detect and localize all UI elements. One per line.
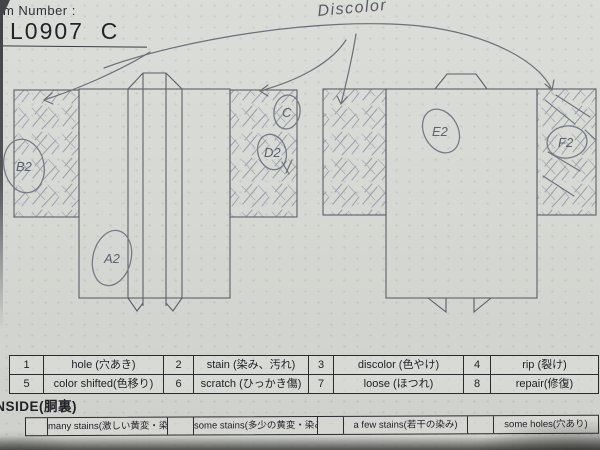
front-collar-bands xyxy=(128,73,182,306)
inside-label: some stains(多少の黄変・染み) xyxy=(194,417,318,435)
defect-label: discolor (色やけ) xyxy=(334,356,464,375)
photo-corner-bottom-left xyxy=(0,430,90,450)
mark-F2: F2 xyxy=(558,135,574,150)
back-collar-top xyxy=(435,74,487,89)
defect-code: 4 xyxy=(464,356,491,375)
kimono-front-diagram xyxy=(14,73,297,311)
inside-checkbox-cell xyxy=(318,417,344,434)
defect-code: 1 xyxy=(10,356,44,375)
kimono-inspection-sheet: Item Number : L0907 C xyxy=(0,0,600,450)
photo-edge-left xyxy=(0,0,3,330)
defect-label: rip (裂け) xyxy=(491,356,598,375)
handwritten-annotations xyxy=(44,24,554,174)
arrow-to-front-right-sleeve xyxy=(260,40,346,91)
handwritten-note-discolor: Discolor xyxy=(317,0,388,20)
defect-code: 3 xyxy=(309,356,334,375)
defect-legend-table: 1 hole (穴あき) 2 stain (染み、汚れ) 3 discolor … xyxy=(9,355,599,394)
back-right-sleeve xyxy=(537,89,596,215)
defect-label: stain (染み、汚れ) xyxy=(194,356,309,375)
defect-label: loose (ほつれ) xyxy=(334,375,464,393)
mark-D2: D2 xyxy=(264,145,281,160)
defect-code: 7 xyxy=(309,375,334,393)
front-left-sleeve xyxy=(14,90,79,217)
kimono-back-diagram xyxy=(323,74,596,312)
mark-C: C xyxy=(282,105,292,120)
defect-label: scratch (ひっかき傷) xyxy=(194,375,309,393)
front-collar-tips xyxy=(128,298,182,311)
defect-code: 6 xyxy=(164,375,194,393)
back-body xyxy=(386,89,537,298)
defect-code: 5 xyxy=(10,375,44,393)
mark-B2: B2 xyxy=(16,159,33,174)
defect-code: 2 xyxy=(164,356,194,375)
defect-code: 8 xyxy=(464,375,491,393)
back-left-sleeve xyxy=(323,89,386,215)
defect-label: color shifted(色移り) xyxy=(44,375,164,393)
inside-checkbox-cell xyxy=(168,418,194,435)
photo-corner-bottom-right xyxy=(455,418,600,450)
mark-A2: A2 xyxy=(103,251,121,266)
inside-label: a few stains(若干の染み) xyxy=(344,416,468,434)
defect-label: repair(修復) xyxy=(491,375,598,393)
front-collar-top xyxy=(128,73,182,89)
front-body xyxy=(79,89,230,298)
arrow-to-back-right-sleeve xyxy=(104,24,552,90)
mark-E2: E2 xyxy=(432,124,449,139)
defect-label: hole (穴あき) xyxy=(44,356,164,375)
back-hem-flaps xyxy=(428,298,491,312)
inside-section-title: INSIDE(胴裏) xyxy=(0,395,77,415)
